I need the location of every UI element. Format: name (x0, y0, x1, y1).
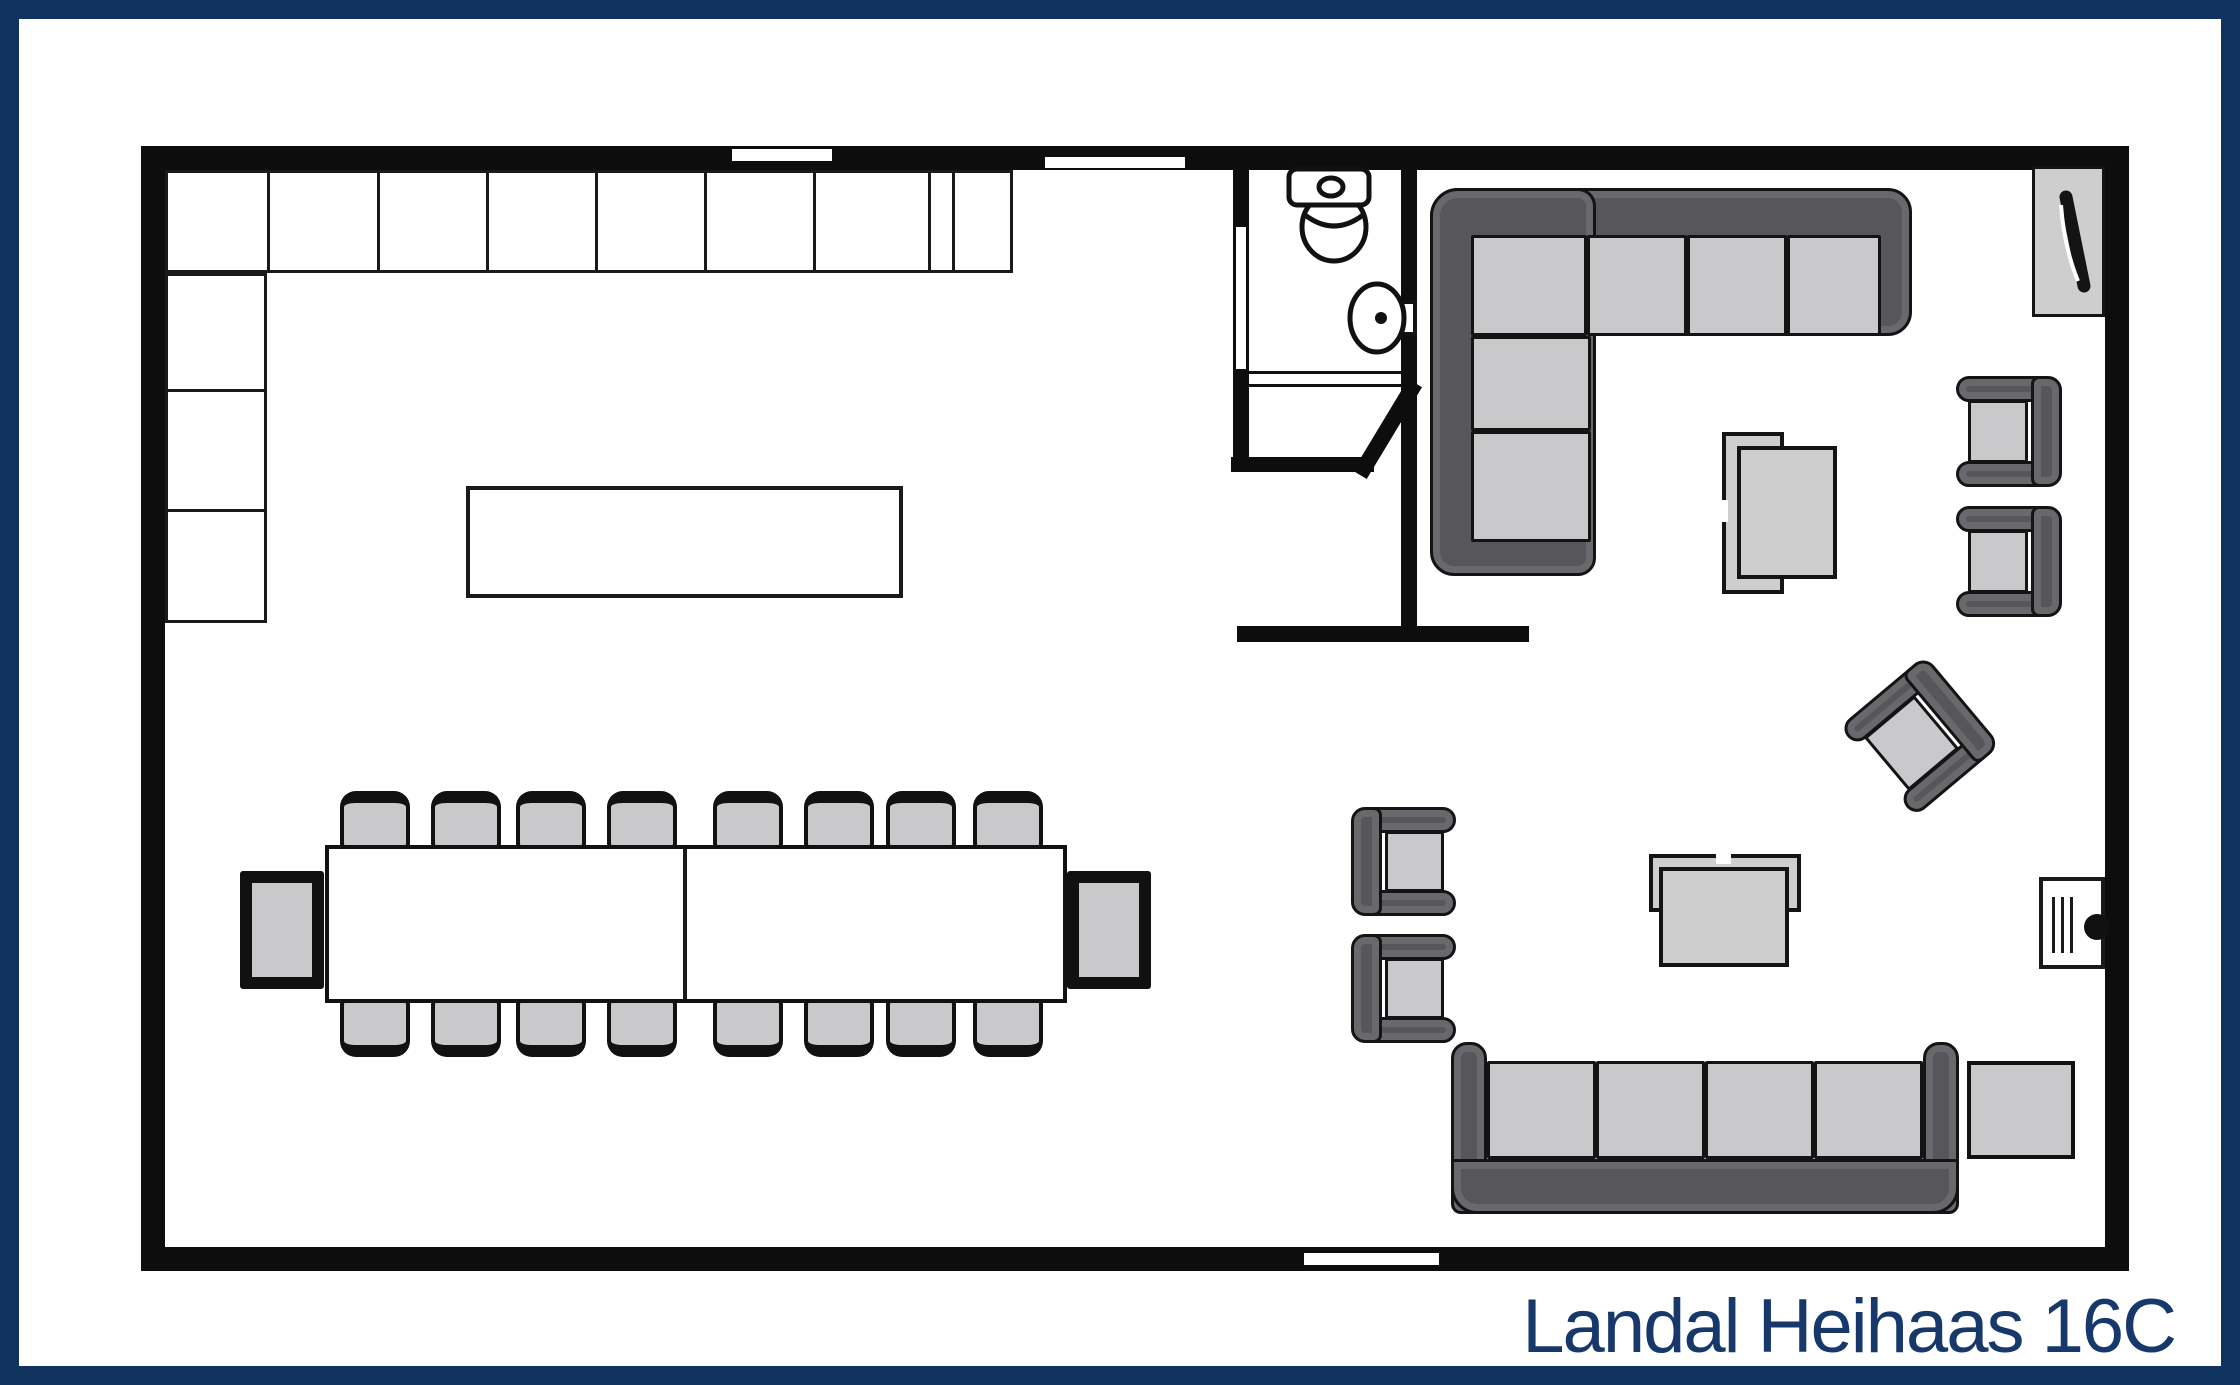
armchair-seat (1385, 831, 1444, 892)
wall-left (141, 146, 165, 1271)
window-opening-2 (1045, 157, 1185, 168)
counter-divider (704, 173, 707, 270)
counter-divider (486, 173, 489, 270)
armchair-seat (1968, 400, 2028, 463)
bathroom-right-wall (1401, 170, 1417, 642)
stove-vent-line (2052, 897, 2055, 953)
bathroom-threshold (1249, 371, 1401, 387)
corner-sofa-seat-corner (1471, 235, 1587, 336)
dining-chair-bottom-3 (516, 999, 586, 1057)
armchair-lounge-1 (1351, 807, 1456, 916)
counter-divider (952, 173, 955, 270)
vestibule-bottom-wall (1231, 457, 1374, 472)
sofa-seat-4 (1814, 1061, 1923, 1159)
counter-divider (813, 173, 816, 270)
sofa-seat-1 (1487, 1061, 1596, 1159)
counter-divider (168, 509, 264, 512)
toilet-icon (1289, 169, 1369, 261)
armchair-back (1351, 807, 1382, 916)
dining-chair-top-5 (713, 791, 783, 849)
counter-divider (377, 173, 380, 270)
window-opening-1 (732, 149, 832, 161)
bathroom-door-slit (1236, 227, 1246, 369)
hallway-stub-wall (1237, 626, 1529, 642)
dining-chair-top-2 (431, 791, 501, 849)
page-title: Landal Heihaas 16C (1522, 1283, 2175, 1370)
counter-divider (168, 389, 264, 392)
coffee-table-1 (1737, 446, 1837, 579)
wall-right (2105, 146, 2129, 1271)
stove-flue-dot (2084, 914, 2110, 940)
armchair-lounge-2 (1351, 934, 1456, 1043)
dining-chair-bottom-4 (607, 999, 677, 1057)
dining-end-table-right (1067, 871, 1151, 989)
armchair-right-wall-2 (1956, 506, 2062, 617)
kitchen-counter-top-row (165, 170, 1013, 273)
sofa-back (1451, 1159, 1959, 1214)
side-table (1967, 1061, 2075, 1159)
sofa-seat-2 (1596, 1061, 1705, 1159)
coffee-table-1-notch (1718, 500, 1728, 522)
kitchen-island (466, 486, 903, 598)
armchair-seat (1385, 958, 1444, 1019)
dining-table (325, 845, 1067, 1003)
armchair-back (2031, 376, 2062, 487)
kitchen-counter-left-column (165, 273, 267, 623)
dining-chair-top-4 (607, 791, 677, 849)
dining-chair-bottom-8 (973, 999, 1043, 1057)
wood-stove (2039, 877, 2105, 969)
counter-divider (928, 173, 931, 270)
dining-chair-bottom-5 (713, 999, 783, 1057)
sofa-seat-3 (1705, 1061, 1814, 1159)
stove-vent-line (2061, 897, 2064, 953)
armchair-back (2031, 506, 2062, 617)
corner-sofa-seat-4 (1787, 235, 1881, 336)
stove-vent-line (2070, 897, 2073, 953)
dining-chair-top-6 (804, 791, 874, 849)
dining-chair-top-8 (973, 791, 1043, 849)
corner-sofa-seat-6 (1471, 431, 1591, 542)
armchair-seat (1968, 530, 2028, 593)
counter-divider (267, 173, 270, 270)
dining-chair-top-1 (340, 791, 410, 849)
armchair-right-wall-1 (1956, 376, 2062, 487)
wall-bottom (141, 1247, 2129, 1271)
corner-sofa-seat-2 (1587, 235, 1687, 336)
coffee-table-2-notch (1716, 850, 1731, 864)
dining-end-table-left (240, 871, 324, 989)
dining-chair-bottom-7 (886, 999, 956, 1057)
door-opening-bottom (1304, 1253, 1439, 1265)
armchair-back (1351, 934, 1382, 1043)
coffee-table-2 (1659, 867, 1789, 967)
dining-chair-bottom-2 (431, 999, 501, 1057)
armchair-rotated (1839, 655, 2001, 817)
dining-table-divider (683, 849, 687, 999)
tv-cabinet (2032, 166, 2105, 317)
corner-sofa-seat-3 (1687, 235, 1787, 336)
floor-plan-canvas: Landal Heihaas 16C (0, 0, 2240, 1385)
dining-chair-top-7 (886, 791, 956, 849)
dining-chair-top-3 (516, 791, 586, 849)
counter-divider (595, 173, 598, 270)
dining-chair-bottom-6 (804, 999, 874, 1057)
dining-chair-bottom-1 (340, 999, 410, 1057)
corner-sofa-seat-5 (1471, 336, 1591, 431)
